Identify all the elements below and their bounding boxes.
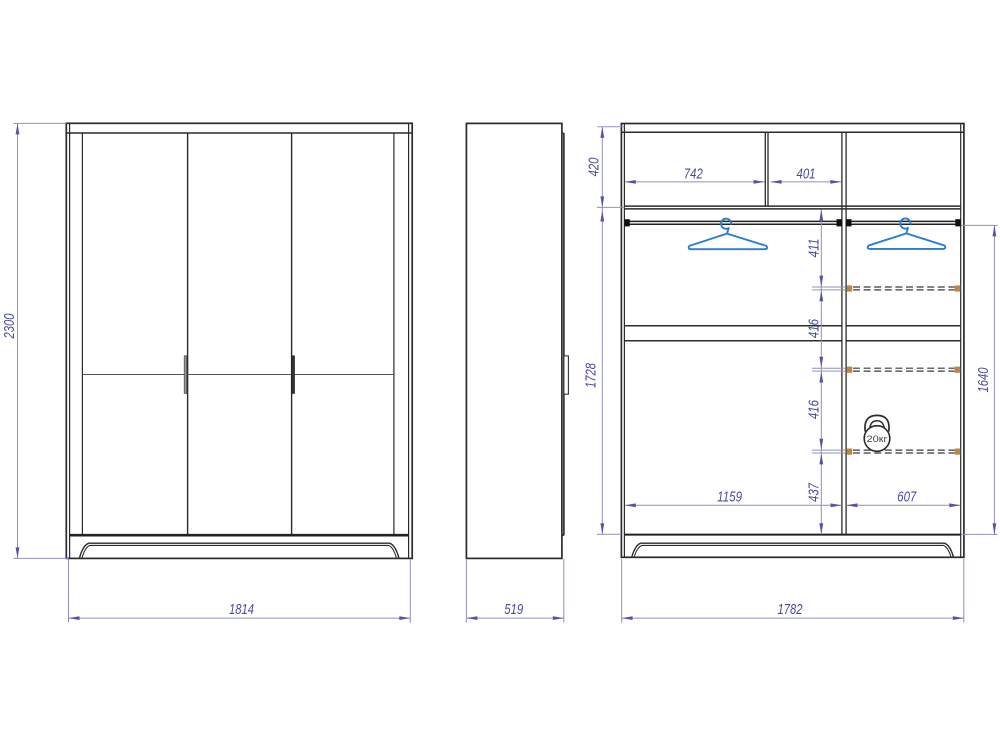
svg-text:742: 742 <box>684 165 703 182</box>
svg-text:411: 411 <box>806 239 823 258</box>
svg-text:416: 416 <box>806 400 823 419</box>
svg-text:1159: 1159 <box>717 488 743 505</box>
svg-text:2300: 2300 <box>1 313 18 339</box>
svg-text:1814: 1814 <box>229 601 254 618</box>
svg-text:416: 416 <box>806 319 823 338</box>
svg-text:607: 607 <box>897 488 916 505</box>
svg-text:1728: 1728 <box>583 363 600 388</box>
svg-text:420: 420 <box>586 157 603 176</box>
svg-text:1640: 1640 <box>975 367 992 392</box>
svg-text:20кг: 20кг <box>867 434 889 445</box>
svg-text:519: 519 <box>504 601 523 618</box>
svg-text:437: 437 <box>806 483 823 502</box>
svg-text:1782: 1782 <box>778 601 803 618</box>
svg-text:401: 401 <box>797 165 816 182</box>
